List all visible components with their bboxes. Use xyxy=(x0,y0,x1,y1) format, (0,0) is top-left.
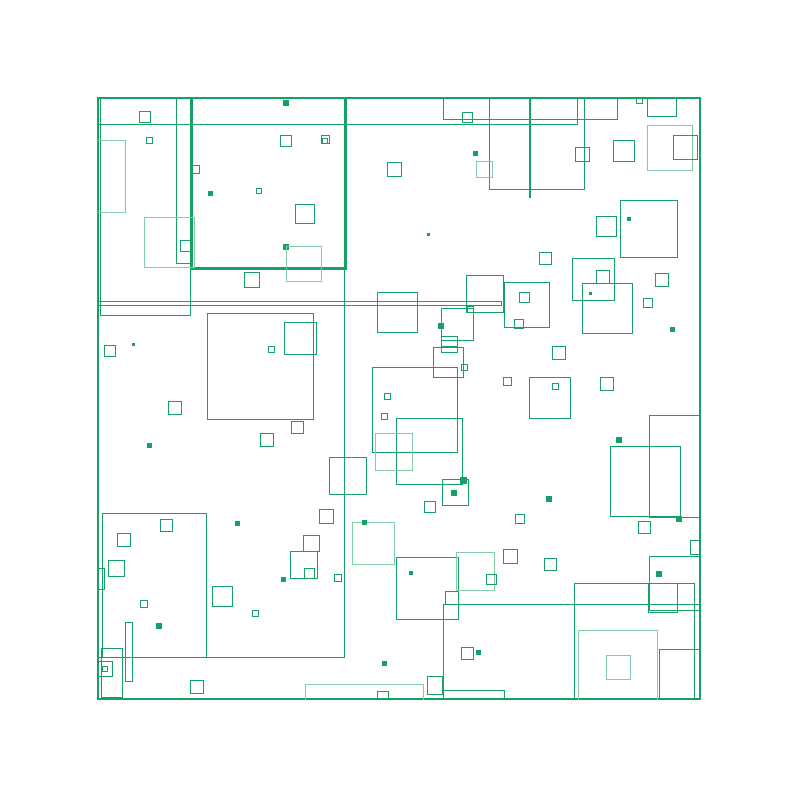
filled-square-dot xyxy=(156,623,162,629)
square-outline xyxy=(456,552,495,591)
square-outline xyxy=(529,377,571,419)
filled-square-dot xyxy=(235,521,240,526)
square-outline xyxy=(139,111,151,123)
filled-square-dot xyxy=(382,661,387,666)
filled-square-dot xyxy=(676,516,682,522)
square-outline xyxy=(596,216,617,237)
square-outline xyxy=(610,446,681,517)
square-outline xyxy=(375,433,413,471)
square-outline xyxy=(387,162,402,177)
square-outline xyxy=(600,377,614,391)
square-outline xyxy=(503,377,512,386)
square-outline xyxy=(445,591,459,605)
filled-square-dot xyxy=(438,323,444,329)
square-outline xyxy=(102,666,108,672)
square-outline xyxy=(552,346,566,360)
square-outline xyxy=(643,298,653,308)
square-outline xyxy=(606,655,631,680)
square-outline xyxy=(552,383,559,390)
square-outline xyxy=(377,292,418,333)
square-outline xyxy=(636,97,643,104)
square-outline xyxy=(180,240,192,252)
square-outline xyxy=(295,204,315,224)
square-outline xyxy=(462,112,473,123)
square-outline xyxy=(322,138,328,144)
square-outline xyxy=(648,583,678,613)
square-outline xyxy=(160,519,173,532)
square-outline xyxy=(108,560,125,577)
filled-square-dot xyxy=(473,151,478,156)
square-outline xyxy=(613,140,635,162)
filled-square-dot xyxy=(147,443,152,448)
square-outline xyxy=(396,557,459,620)
square-outline xyxy=(303,535,320,552)
square-outline xyxy=(659,649,701,700)
filled-square-dot xyxy=(283,100,289,106)
square-outline xyxy=(461,364,468,371)
square-outline xyxy=(582,283,633,334)
square-outline xyxy=(304,568,315,579)
filled-square-dot xyxy=(427,233,430,236)
square-outline xyxy=(620,200,678,258)
art-canvas xyxy=(0,0,800,800)
square-outline xyxy=(539,252,552,265)
square-outline xyxy=(441,336,458,347)
square-outline xyxy=(544,558,557,571)
filled-square-dot xyxy=(546,496,552,502)
filled-square-dot xyxy=(460,477,467,484)
square-outline xyxy=(268,346,275,353)
filled-square-dot xyxy=(627,217,631,221)
square-outline xyxy=(529,98,531,198)
square-outline xyxy=(284,322,317,355)
square-outline xyxy=(352,522,395,565)
filled-square-dot xyxy=(281,577,286,582)
filled-square-dot xyxy=(616,437,622,443)
square-outline xyxy=(125,622,133,682)
square-outline xyxy=(504,282,550,328)
square-outline xyxy=(291,421,304,434)
filled-square-dot xyxy=(132,343,135,346)
square-outline xyxy=(575,147,590,162)
square-outline xyxy=(334,574,342,582)
square-outline xyxy=(424,501,436,513)
square-outline xyxy=(256,188,262,194)
square-outline xyxy=(286,246,322,282)
art-clip-region xyxy=(97,97,701,700)
square-outline xyxy=(97,568,105,590)
filled-square-dot xyxy=(451,490,457,496)
square-outline xyxy=(97,140,126,213)
square-outline xyxy=(190,680,204,694)
square-outline xyxy=(305,684,424,700)
square-outline xyxy=(377,691,389,700)
square-outline xyxy=(690,540,701,555)
square-outline xyxy=(168,401,182,415)
square-outline xyxy=(489,97,585,190)
square-outline xyxy=(467,306,474,313)
square-outline xyxy=(638,521,651,534)
square-outline xyxy=(319,509,334,524)
filled-square-dot xyxy=(362,520,367,525)
filled-square-dot xyxy=(208,191,213,196)
square-outline xyxy=(596,270,610,284)
square-outline xyxy=(191,165,200,174)
square-outline xyxy=(329,457,367,495)
filled-square-dot xyxy=(476,650,481,655)
square-outline xyxy=(443,690,505,700)
square-outline xyxy=(427,676,443,695)
filled-square-dot xyxy=(670,327,675,332)
square-outline xyxy=(486,574,497,585)
square-outline xyxy=(244,272,260,288)
square-outline xyxy=(673,135,698,160)
square-outline xyxy=(655,273,669,287)
square-outline xyxy=(140,600,148,608)
square-outline xyxy=(212,586,233,607)
square-outline xyxy=(461,647,474,660)
square-outline xyxy=(476,161,493,178)
square-outline xyxy=(104,345,116,357)
square-outline xyxy=(280,135,292,147)
square-outline xyxy=(515,514,525,524)
square-outline xyxy=(117,533,131,547)
filled-square-dot xyxy=(656,571,662,577)
square-outline xyxy=(503,549,518,564)
square-outline xyxy=(260,433,274,447)
square-outline xyxy=(647,97,677,117)
square-outline xyxy=(146,137,153,144)
filled-square-dot xyxy=(409,571,413,575)
square-outline xyxy=(252,610,259,617)
filled-square-dot xyxy=(589,292,592,295)
